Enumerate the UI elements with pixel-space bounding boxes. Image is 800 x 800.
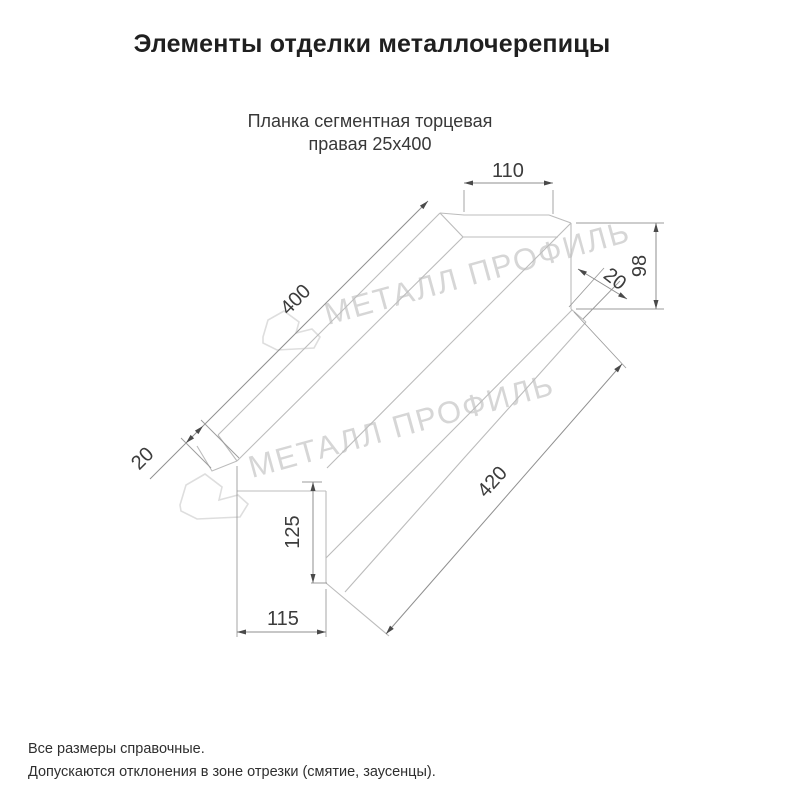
dimension-front-height: 125 bbox=[282, 482, 327, 583]
arrowhead-icon bbox=[311, 482, 316, 491]
arrowhead-icon bbox=[544, 181, 553, 186]
footer-note-line1: Все размеры справочные. bbox=[28, 738, 768, 761]
arrowhead-icon bbox=[317, 630, 326, 635]
dim-label-110: 110 bbox=[492, 160, 524, 182]
dim-label-400: 400 bbox=[276, 280, 315, 319]
arrowhead-icon bbox=[237, 630, 246, 635]
metal-profil-logo-icon bbox=[180, 474, 248, 519]
page: Элементы отделки металлочерепицы Планка … bbox=[0, 0, 800, 800]
dim-label-420: 420 bbox=[473, 462, 512, 502]
arrowhead-icon bbox=[654, 300, 659, 309]
technical-drawing: МЕТАЛЛ ПРОФИЛЬ МЕТАЛЛ ПРОФИЛЬ bbox=[0, 0, 800, 800]
dim-label-98: 98 bbox=[629, 255, 651, 277]
dimension-end-hem-width: 20 bbox=[569, 264, 630, 319]
arrowhead-icon bbox=[311, 574, 316, 583]
dim-label-20-left: 20 bbox=[127, 443, 158, 474]
arrowhead-icon bbox=[654, 223, 659, 232]
footer-notes: Все размеры справочные. Допускаются откл… bbox=[28, 738, 768, 783]
arrowhead-icon bbox=[578, 269, 587, 276]
arrowhead-icon bbox=[618, 292, 627, 299]
arrowhead-icon bbox=[464, 181, 473, 186]
watermark-text: МЕТАЛЛ ПРОФИЛЬ bbox=[245, 367, 559, 485]
dim-label-115: 115 bbox=[267, 608, 299, 630]
dim-label-125: 125 bbox=[282, 515, 304, 548]
footer-note-line2: Допускаются отклонения в зоне отрезки (с… bbox=[28, 761, 768, 784]
dimension-top-face-width: 110 bbox=[464, 160, 553, 214]
dimension-length-bottom: 420 bbox=[386, 312, 626, 634]
